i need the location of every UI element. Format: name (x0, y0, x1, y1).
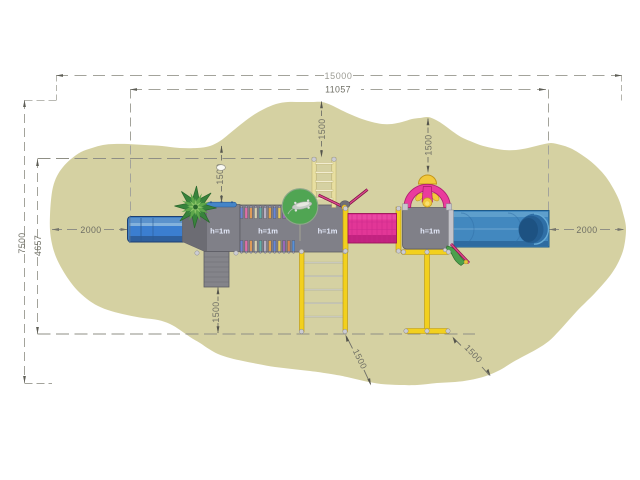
svg-text:7500: 7500 (17, 232, 27, 253)
svg-text:2000: 2000 (576, 225, 597, 235)
svg-text:1500: 1500 (424, 134, 434, 155)
svg-text:4657: 4657 (33, 235, 43, 256)
svg-text:h=1m: h=1m (258, 227, 278, 236)
svg-text:1500: 1500 (211, 301, 221, 322)
svg-text:2000: 2000 (80, 225, 101, 235)
svg-text:1500: 1500 (317, 118, 327, 139)
svg-text:h=1m: h=1m (318, 227, 338, 236)
svg-text:h=1m: h=1m (420, 227, 440, 236)
svg-text:11057: 11057 (325, 85, 351, 95)
svg-text:15000: 15000 (324, 71, 352, 81)
svg-text:h=1m: h=1m (210, 227, 230, 236)
